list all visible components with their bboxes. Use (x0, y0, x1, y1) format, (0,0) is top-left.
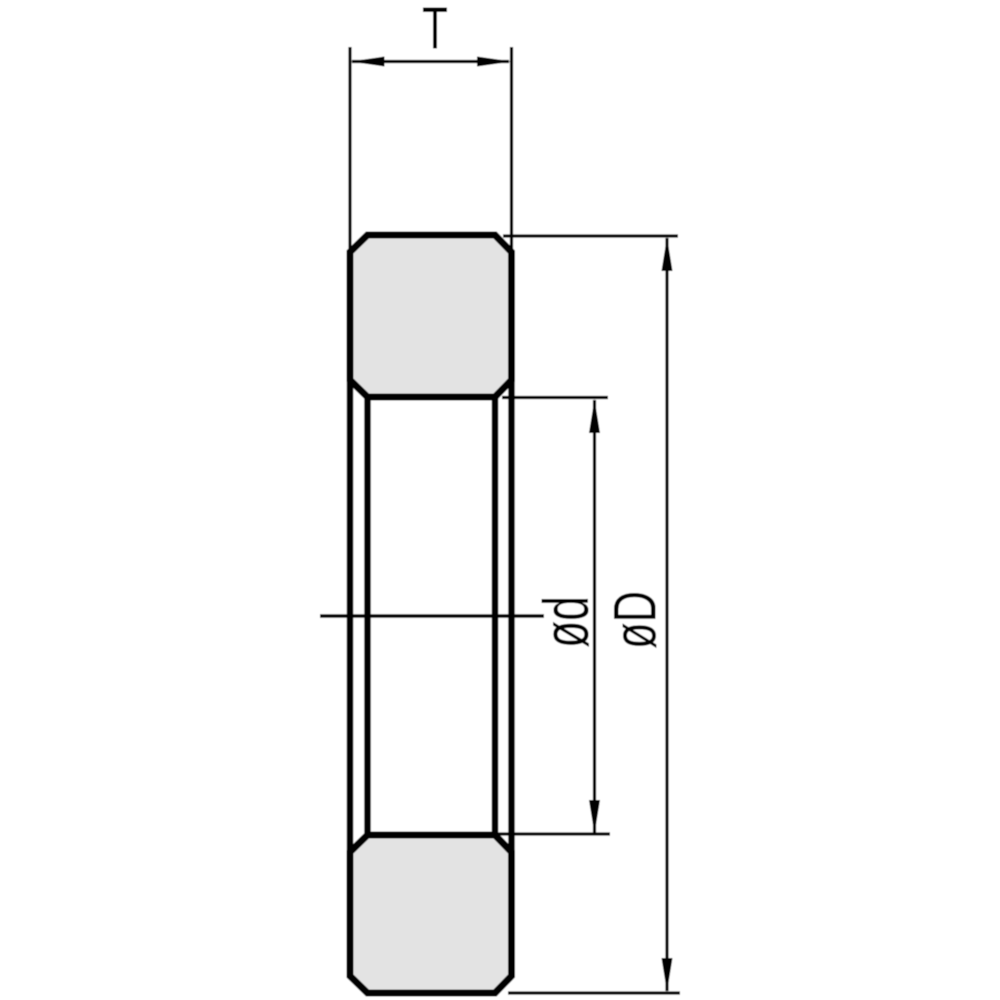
svg-text:ød: ød (530, 596, 602, 648)
svg-text:T: T (422, 0, 448, 62)
svg-text:øD: øD (602, 591, 669, 649)
